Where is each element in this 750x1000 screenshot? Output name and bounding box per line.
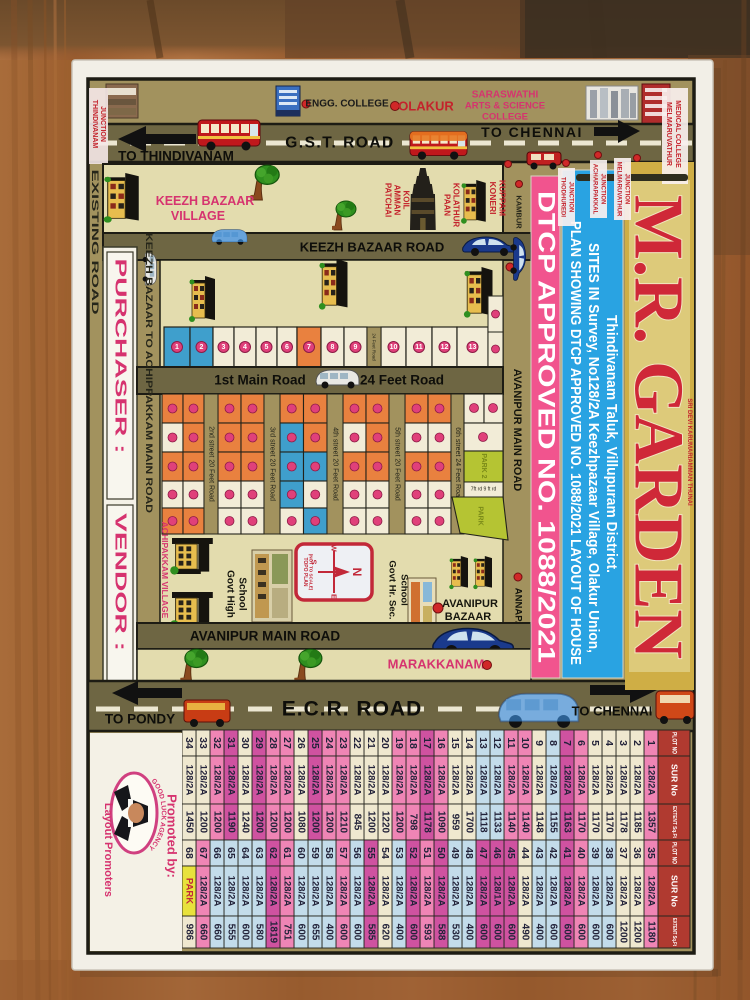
svg-text:400: 400 [324, 924, 335, 941]
svg-text:5: 5 [589, 740, 601, 746]
svg-text:2: 2 [631, 740, 643, 746]
svg-text:EXTENT Sq.Ft: EXTENT Sq.Ft [671, 806, 677, 838]
svg-text:S: S [310, 559, 319, 564]
svg-text:1200: 1200 [212, 811, 223, 834]
svg-text:1200: 1200 [632, 921, 643, 944]
svg-text:37: 37 [617, 847, 629, 859]
svg-text:22: 22 [351, 737, 363, 749]
svg-text:1240: 1240 [240, 811, 251, 834]
svg-text:128/2A: 128/2A [268, 876, 279, 907]
svg-text:128/2A: 128/2A [506, 876, 517, 907]
svg-text:600: 600 [408, 924, 419, 941]
svg-text:751: 751 [282, 924, 293, 941]
svg-text:DTCP APPROVED NO. 1088/2021: DTCP APPROVED NO. 1088/2021 [533, 191, 560, 663]
svg-text:JUNCTION: JUNCTION [99, 106, 106, 142]
svg-text:7: 7 [307, 344, 311, 351]
svg-text:585: 585 [366, 924, 377, 941]
svg-text:128/2A: 128/2A [450, 765, 461, 796]
svg-text:13: 13 [469, 344, 477, 351]
svg-text:798: 798 [408, 814, 419, 831]
svg-text:128/2A: 128/2A [212, 765, 223, 796]
svg-text:128/2A: 128/2A [310, 765, 321, 796]
svg-text:TO CHENNAI: TO CHENNAI [572, 704, 653, 719]
svg-text:66: 66 [211, 847, 223, 859]
svg-text:128/2A: 128/2A [534, 765, 545, 796]
svg-text:JUNCTION: JUNCTION [600, 174, 606, 205]
svg-text:128/2A: 128/2A [436, 876, 447, 907]
svg-text:128/2A: 128/2A [380, 765, 391, 796]
svg-text:128/2A: 128/2A [226, 765, 237, 796]
svg-text:1: 1 [175, 344, 179, 351]
svg-text:959: 959 [450, 814, 461, 831]
svg-text:AVANIPUR: AVANIPUR [442, 598, 498, 610]
svg-text:1190: 1190 [226, 811, 237, 833]
svg-text:128/2A: 128/2A [422, 876, 433, 907]
svg-text:38: 38 [603, 847, 615, 859]
svg-text:47: 47 [477, 847, 489, 859]
svg-text:61: 61 [281, 847, 293, 859]
svg-text:128/2A: 128/2A [296, 876, 307, 907]
svg-text:OLAKUR: OLAKUR [398, 99, 454, 114]
svg-text:Govt High: Govt High [225, 570, 236, 618]
svg-text:KOIL: KOIL [402, 190, 411, 209]
svg-text:AVANIPUR MAIN ROAD: AVANIPUR MAIN ROAD [511, 369, 523, 491]
svg-text:4: 4 [603, 740, 615, 746]
svg-text:128/2A: 128/2A [198, 876, 209, 907]
svg-text:VENDOR :: VENDOR : [112, 513, 129, 651]
svg-text:128/2A: 128/2A [282, 876, 293, 907]
svg-text:845: 845 [352, 814, 363, 831]
svg-text:9: 9 [354, 344, 358, 351]
svg-text:128/2A: 128/2A [590, 876, 601, 907]
svg-text:1210: 1210 [338, 811, 349, 834]
svg-text:128/2A: 128/2A [604, 876, 615, 907]
svg-text:18: 18 [407, 737, 419, 749]
svg-text:36: 36 [631, 847, 643, 859]
svg-text:1170: 1170 [576, 811, 587, 833]
svg-text:4th street 20 Feet Road: 4th street 20 Feet Road [332, 427, 339, 501]
svg-text:1: 1 [645, 740, 657, 746]
svg-text:KEEZH BAZAAR TO ACHIPPAKKAM MA: KEEZH BAZAAR TO ACHIPPAKKAM MAIN ROAD [144, 233, 154, 514]
svg-text:KEEZH BAZAAR: KEEZH BAZAAR [156, 194, 255, 208]
svg-text:45: 45 [505, 847, 517, 859]
svg-text:128/2A: 128/2A [338, 765, 349, 796]
svg-text:Layout Promoters: Layout Promoters [102, 803, 114, 897]
svg-text:128/2A: 128/2A [408, 765, 419, 796]
svg-text:JUNCTION: JUNCTION [568, 182, 574, 213]
svg-text:986: 986 [184, 924, 195, 941]
svg-text:SUR No: SUR No [670, 875, 679, 907]
svg-text:KONERI: KONERI [488, 181, 498, 214]
svg-text:600: 600 [478, 924, 489, 941]
svg-text:128/2A: 128/2A [296, 765, 307, 796]
svg-text:1220: 1220 [380, 811, 391, 834]
svg-text:KEEZH BAZAAR ROAD: KEEZH BAZAAR ROAD [300, 240, 444, 255]
svg-text:1200: 1200 [366, 811, 377, 834]
svg-text:11: 11 [505, 737, 517, 748]
svg-text:W: W [330, 544, 339, 552]
svg-text:1155: 1155 [548, 811, 559, 833]
svg-text:128/2A: 128/2A [338, 876, 349, 907]
svg-text:24 Feet Road: 24 Feet Road [360, 373, 444, 388]
svg-text:41: 41 [561, 847, 573, 859]
svg-text:KOLATHUR: KOLATHUR [452, 183, 461, 228]
svg-text:128/2A: 128/2A [394, 765, 405, 796]
svg-text:128/2A: 128/2A [324, 765, 335, 796]
svg-text:57: 57 [337, 847, 349, 859]
svg-text:5: 5 [265, 344, 269, 351]
svg-text:128/2A: 128/2A [520, 876, 531, 907]
svg-text:Govt Hr. Sec.: Govt Hr. Sec. [387, 560, 398, 619]
svg-text:600: 600 [338, 924, 349, 941]
svg-text:THINDIVANAM: THINDIVANAM [91, 100, 98, 149]
svg-text:42: 42 [547, 847, 559, 859]
svg-text:128/2A: 128/2A [464, 876, 475, 907]
svg-text:400: 400 [464, 924, 475, 941]
svg-text:TO PONDY: TO PONDY [105, 712, 175, 727]
svg-text:PAAN: PAAN [443, 194, 452, 216]
svg-text:600: 600 [352, 924, 363, 941]
svg-text:128/2A: 128/2A [548, 765, 559, 796]
svg-text:128/2A: 128/2A [324, 876, 335, 907]
svg-text:59: 59 [309, 847, 321, 859]
svg-text:128/2A: 128/2A [492, 765, 503, 796]
svg-text:35: 35 [645, 847, 657, 859]
svg-text:593: 593 [422, 924, 433, 941]
svg-text:49: 49 [449, 847, 461, 859]
svg-text:63: 63 [253, 847, 265, 859]
svg-text:1200: 1200 [618, 921, 629, 944]
svg-text:ARTS & SCIENCE: ARTS & SCIENCE [465, 101, 545, 112]
svg-text:TO CHENNAI: TO CHENNAI [481, 124, 583, 140]
svg-text:128/2A: 128/2A [408, 876, 419, 907]
svg-text:600: 600 [240, 924, 251, 941]
svg-text:128/2A: 128/2A [506, 765, 517, 796]
svg-text:51: 51 [421, 847, 433, 859]
svg-text:67: 67 [197, 847, 209, 859]
svg-text:8: 8 [547, 740, 559, 746]
svg-text:600: 600 [296, 924, 307, 941]
svg-text:400: 400 [534, 924, 545, 941]
svg-text:EXISTING ROAD: EXISTING ROAD [90, 170, 100, 316]
svg-text:128/2A: 128/2A [618, 876, 629, 907]
svg-text:128/2A: 128/2A [240, 765, 251, 796]
svg-text:ACHIPAKKAM VILLAGE: ACHIPAKKAM VILLAGE [160, 522, 170, 619]
svg-text:SITES IN Survey, No128/2A Keez: SITES IN Survey, No128/2A Keezhpazaar Vi… [585, 243, 601, 653]
svg-text:School: School [237, 577, 248, 611]
svg-text:1178: 1178 [618, 811, 629, 833]
svg-text:33: 33 [197, 737, 209, 749]
svg-text:PLAN SHOWING DTCP APPROVED NO.: PLAN SHOWING DTCP APPROVED NO. 1088/2021… [567, 221, 583, 665]
svg-text:128/2A: 128/2A [352, 765, 363, 796]
svg-text:400: 400 [394, 924, 405, 941]
svg-text:1200: 1200 [310, 811, 321, 834]
svg-text:128/2A: 128/2A [576, 765, 587, 796]
svg-text:128/2A: 128/2A [534, 876, 545, 907]
svg-text:40: 40 [575, 847, 587, 859]
svg-text:68: 68 [183, 847, 195, 859]
svg-text:128/2A: 128/2A [254, 876, 265, 907]
svg-text:PLOT NO: PLOT NO [671, 842, 678, 864]
svg-text:128/2A: 128/2A [184, 765, 195, 796]
svg-text:27: 27 [281, 737, 293, 749]
svg-text:39: 39 [589, 847, 601, 859]
svg-text:128/2A: 128/2A [422, 765, 433, 796]
svg-text:128/2A: 128/2A [478, 765, 489, 796]
svg-text:128/2A: 128/2A [562, 876, 573, 907]
svg-text:SUR No: SUR No [670, 764, 679, 796]
svg-text:6th street 24 Feet Road: 6th street 24 Feet Road [454, 427, 461, 501]
svg-text:1700: 1700 [464, 811, 475, 834]
svg-text:SARASWATHI: SARASWATHI [472, 90, 539, 101]
svg-text:4: 4 [243, 344, 247, 351]
svg-text:64: 64 [239, 847, 251, 859]
svg-text:588: 588 [436, 924, 447, 941]
svg-text:6: 6 [285, 344, 289, 351]
svg-text:600: 600 [506, 924, 517, 941]
svg-text:55: 55 [365, 847, 377, 859]
svg-text:655: 655 [310, 924, 321, 941]
svg-text:25: 25 [309, 737, 321, 749]
svg-text:128/2A: 128/2A [450, 876, 461, 907]
svg-text:620: 620 [380, 924, 391, 941]
svg-text:14: 14 [463, 737, 475, 749]
svg-text:ENGG. COLLEGE: ENGG. COLLEGE [305, 99, 389, 110]
svg-text:17: 17 [421, 737, 433, 749]
svg-text:THODHUREDI: THODHUREDI [560, 177, 566, 217]
svg-text:1200: 1200 [254, 811, 265, 834]
svg-text:12: 12 [441, 344, 449, 351]
svg-text:128/2A: 128/2A [632, 876, 643, 907]
svg-text:PURCHASER :: PURCHASER : [112, 259, 129, 454]
svg-text:1200: 1200 [198, 811, 209, 834]
svg-text:32: 32 [211, 737, 223, 749]
svg-text:1148: 1148 [534, 811, 545, 833]
svg-text:50: 50 [435, 847, 447, 859]
svg-text:53: 53 [393, 847, 405, 859]
svg-text:128/2A: 128/2A [254, 765, 265, 796]
svg-text:28: 28 [267, 737, 279, 749]
svg-text:7ft rd 9 ft rd: 7ft rd 9 ft rd [471, 487, 497, 493]
svg-text:1170: 1170 [590, 811, 601, 833]
svg-text:128/2A: 128/2A [352, 876, 363, 907]
svg-text:660: 660 [198, 924, 209, 941]
svg-text:15: 15 [449, 737, 461, 749]
svg-text:24 Feet Road: 24 Feet Road [372, 333, 377, 361]
svg-text:600: 600 [492, 924, 503, 941]
svg-text:7: 7 [561, 740, 573, 746]
svg-text:AMMAN: AMMAN [393, 185, 402, 216]
svg-text:5th street 20 Feet Road: 5th street 20 Feet Road [394, 427, 401, 501]
svg-text:12: 12 [491, 737, 503, 749]
svg-text:23: 23 [337, 737, 349, 749]
svg-text:VILLAGE: VILLAGE [171, 209, 225, 223]
svg-text:128/2A: 128/2A [366, 765, 377, 796]
svg-text:1200: 1200 [282, 811, 293, 834]
svg-text:JUNCTION: JUNCTION [624, 174, 630, 205]
svg-text:EXTENT Sq.Ft: EXTENT Sq.Ft [671, 918, 677, 946]
svg-text:1185: 1185 [632, 811, 643, 833]
svg-text:Promoted by:: Promoted by: [165, 794, 180, 878]
svg-text:PATCHAI: PATCHAI [384, 183, 393, 217]
svg-text:1200: 1200 [394, 811, 405, 834]
svg-text:600: 600 [562, 924, 573, 941]
svg-text:34: 34 [183, 737, 195, 749]
svg-text:128/2A: 128/2A [576, 876, 587, 907]
svg-text:128/2A: 128/2A [618, 765, 629, 796]
svg-text:580: 580 [254, 924, 265, 941]
svg-text:1819: 1819 [268, 921, 279, 944]
svg-text:1200: 1200 [324, 811, 335, 834]
svg-text:20: 20 [379, 737, 391, 749]
svg-text:10: 10 [519, 737, 531, 749]
svg-text:KAMBUR: KAMBUR [515, 195, 524, 229]
svg-text:128/2A: 128/2A [632, 765, 643, 796]
svg-text:1450: 1450 [184, 811, 195, 834]
svg-text:M.R. GARDEN: M.R. GARDEN [620, 195, 697, 659]
svg-text:490: 490 [520, 924, 531, 941]
svg-text:52: 52 [407, 847, 419, 859]
svg-text:128/2A: 128/2A [604, 765, 615, 796]
svg-text:128/2A: 128/2A [646, 765, 657, 796]
svg-text:1357: 1357 [646, 811, 657, 834]
svg-text:26: 26 [295, 737, 307, 749]
svg-text:16: 16 [435, 737, 447, 749]
svg-text:6: 6 [575, 740, 587, 746]
svg-text:58: 58 [323, 847, 335, 859]
svg-text:600: 600 [576, 924, 587, 941]
svg-text:ACHARAPAKKAL: ACHARAPAKKAL [592, 164, 598, 215]
svg-text:600: 600 [548, 924, 559, 941]
svg-text:48: 48 [463, 847, 475, 859]
svg-text:11: 11 [415, 344, 423, 351]
svg-text:128/2A: 128/2A [520, 765, 531, 796]
svg-text:128/2A: 128/2A [464, 765, 475, 796]
svg-text:AVANIPUR MAIN ROAD: AVANIPUR MAIN ROAD [190, 629, 340, 644]
svg-text:SRI DEVI KARUMARIAMMAN THUNAI: SRI DEVI KARUMARIAMMAN THUNAI [686, 398, 692, 506]
svg-text:30: 30 [239, 737, 251, 749]
svg-text:24: 24 [323, 737, 335, 749]
svg-text:128/2A: 128/2A [380, 876, 391, 907]
svg-text:MEDICAL COLLEGE: MEDICAL COLLEGE [674, 100, 681, 168]
svg-text:128/2A: 128/2A [478, 876, 489, 907]
svg-text:128/2A: 128/2A [212, 876, 223, 907]
svg-text:65: 65 [225, 847, 237, 859]
svg-text:128/2A: 128/2A [590, 765, 601, 796]
svg-text:660: 660 [212, 924, 223, 941]
svg-text:1140: 1140 [506, 811, 517, 833]
svg-text:555: 555 [226, 924, 237, 941]
svg-text:128/2A: 128/2A [198, 765, 209, 796]
svg-text:8: 8 [331, 344, 335, 351]
svg-text:PARK: PARK [184, 878, 195, 904]
svg-text:128/2A: 128/2A [436, 765, 447, 796]
svg-text:1090: 1090 [436, 811, 447, 834]
svg-text:128/2A: 128/2A [282, 765, 293, 796]
svg-text:MELMARUVATHUR: MELMARUVATHUR [665, 102, 672, 166]
svg-text:COLLEGE: COLLEGE [482, 112, 528, 123]
svg-text:128/2A: 128/2A [268, 765, 279, 796]
svg-text:128/2A: 128/2A [366, 876, 377, 907]
svg-text:128/2A: 128/2A [240, 876, 251, 907]
svg-text:1180: 1180 [646, 921, 657, 943]
svg-text:60: 60 [295, 847, 307, 859]
svg-text:2nd street 20 Feet Road: 2nd street 20 Feet Road [208, 426, 215, 502]
svg-text:10: 10 [390, 344, 398, 351]
svg-text:128/2A: 128/2A [310, 876, 321, 907]
svg-text:128/1A: 128/1A [492, 876, 503, 907]
svg-text:62: 62 [267, 847, 279, 859]
svg-text:PLOT NO: PLOT NO [671, 732, 678, 754]
svg-text:600: 600 [590, 924, 601, 941]
svg-text:2: 2 [200, 344, 204, 351]
svg-text:3: 3 [617, 740, 629, 746]
svg-text:530: 530 [450, 924, 461, 941]
svg-text:29: 29 [253, 737, 265, 749]
svg-text:TOPO PLAN: TOPO PLAN [302, 557, 308, 586]
svg-text:46: 46 [491, 847, 503, 859]
svg-text:Thindivanam Taluk, Villupuram: Thindivanam Taluk, Villupuram District. [603, 315, 619, 573]
svg-text:600: 600 [604, 924, 615, 941]
svg-text:N: N [350, 568, 364, 577]
svg-text:31: 31 [225, 737, 237, 749]
svg-text:MELMARUVATHUR: MELMARUVATHUR [616, 162, 622, 217]
svg-text:128/2A: 128/2A [646, 876, 657, 907]
svg-text:1st Main Road: 1st Main Road [214, 373, 306, 388]
svg-text:1133: 1133 [492, 811, 503, 833]
svg-text:3: 3 [222, 344, 226, 351]
svg-text:56: 56 [351, 847, 363, 859]
svg-text:19: 19 [393, 737, 405, 749]
svg-text:BAZAAR: BAZAAR [445, 611, 491, 623]
svg-text:E.C.R. ROAD: E.C.R. ROAD [282, 698, 423, 721]
svg-text:128/2A: 128/2A [548, 876, 559, 907]
svg-text:128/2A: 128/2A [226, 876, 237, 907]
svg-text:KUPPAM: KUPPAM [498, 180, 508, 216]
svg-text:PARK 2: PARK 2 [480, 453, 487, 478]
svg-text:E: E [330, 594, 339, 599]
svg-text:1140: 1140 [520, 811, 531, 833]
svg-text:44: 44 [519, 847, 531, 859]
svg-text:1080: 1080 [296, 811, 307, 834]
svg-text:128/2A: 128/2A [562, 765, 573, 796]
svg-text:TO THINDIVANAM: TO THINDIVANAM [118, 149, 234, 164]
svg-text:43: 43 [533, 847, 545, 859]
svg-text:3rd street 20 Feet Road: 3rd street 20 Feet Road [269, 427, 276, 501]
svg-text:G.S.T. ROAD: G.S.T. ROAD [285, 135, 395, 152]
svg-text:128/2A: 128/2A [394, 876, 405, 907]
svg-text:21: 21 [365, 737, 377, 749]
svg-text:1118: 1118 [478, 811, 489, 833]
svg-text:1170: 1170 [604, 811, 615, 833]
svg-text:PARK: PARK [477, 506, 484, 525]
svg-text:9: 9 [533, 740, 545, 746]
svg-text:13: 13 [477, 737, 489, 749]
svg-text:1163: 1163 [562, 811, 573, 833]
svg-text:1178: 1178 [422, 811, 433, 833]
svg-text:1200: 1200 [268, 811, 279, 834]
svg-text:54: 54 [379, 847, 391, 859]
svg-text:MARAKKANAM: MARAKKANAM [388, 657, 485, 672]
